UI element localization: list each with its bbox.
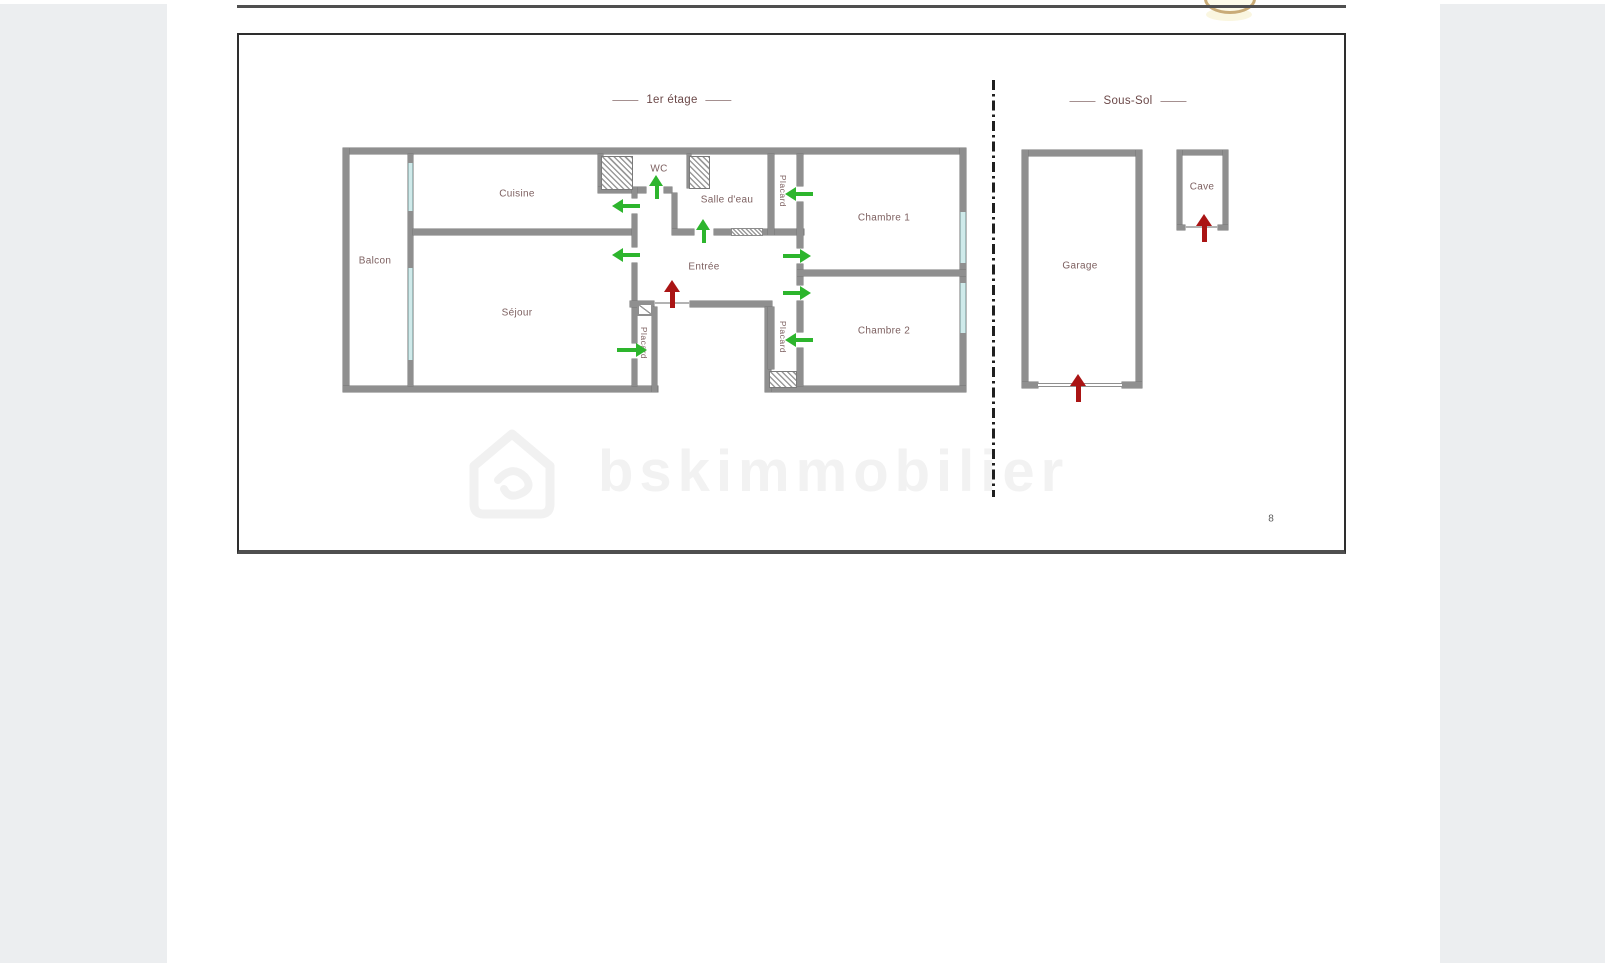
interior-door-arrow-icon bbox=[785, 187, 813, 201]
interior-door-arrow-icon bbox=[783, 286, 811, 300]
interior-door-arrow-icon bbox=[649, 175, 664, 199]
door-threshold-hatch bbox=[731, 228, 763, 236]
page: bskimmobilier 1er étage Sous-Sol bbox=[0, 0, 1605, 963]
wall bbox=[1022, 382, 1038, 388]
shaft-hatch bbox=[769, 371, 797, 388]
room-label-salle-deau: Salle d'eau bbox=[701, 195, 753, 206]
wall bbox=[1136, 150, 1142, 388]
section-title-label: 1er étage bbox=[646, 94, 697, 106]
section-title-1er-etage: 1er étage bbox=[612, 94, 731, 106]
interior-door-arrow-icon bbox=[612, 248, 640, 262]
wall bbox=[1122, 382, 1142, 388]
wall bbox=[1177, 225, 1185, 230]
shaft-hatch bbox=[689, 156, 710, 189]
window bbox=[960, 212, 966, 263]
wall bbox=[672, 229, 694, 235]
wall bbox=[632, 214, 637, 247]
title-dash bbox=[1161, 101, 1187, 102]
wall bbox=[797, 270, 966, 276]
room-label-sejour: Séjour bbox=[502, 308, 533, 319]
window bbox=[408, 268, 413, 360]
section-title-label: Sous-Sol bbox=[1103, 95, 1152, 107]
room-label-cave: Cave bbox=[1190, 182, 1215, 193]
entrance-door-arrow-icon bbox=[1196, 214, 1213, 242]
page-number: 8 bbox=[1268, 514, 1274, 525]
wall bbox=[664, 187, 672, 193]
shaft-hatch bbox=[601, 156, 633, 190]
wall bbox=[768, 154, 774, 235]
wall bbox=[413, 229, 632, 235]
wall bbox=[1223, 150, 1228, 230]
entrance-door-arrow-icon bbox=[1070, 374, 1087, 402]
room-label-chambre-1: Chambre 1 bbox=[858, 213, 910, 224]
wall bbox=[343, 386, 658, 392]
watermark-text: bskimmobilier bbox=[598, 438, 1069, 505]
title-dash bbox=[612, 100, 638, 101]
wall bbox=[1218, 225, 1228, 230]
wall bbox=[343, 148, 966, 154]
wall bbox=[797, 154, 803, 186]
wall bbox=[797, 348, 803, 386]
wall bbox=[1177, 150, 1228, 155]
wall bbox=[1022, 150, 1142, 156]
entrance-door-arrow-icon bbox=[664, 280, 681, 308]
previous-frame-border bbox=[237, 5, 1346, 8]
page-margin-left bbox=[0, 4, 167, 963]
title-dash bbox=[1069, 101, 1095, 102]
title-dash bbox=[706, 100, 732, 101]
room-label-entree: Entrée bbox=[688, 262, 719, 273]
wall bbox=[690, 301, 772, 307]
interior-door-arrow-icon bbox=[785, 333, 813, 347]
interior-door-arrow-icon bbox=[617, 343, 647, 357]
closet-box bbox=[637, 303, 653, 316]
wall bbox=[632, 359, 637, 386]
room-label-balcon: Balcon bbox=[359, 256, 391, 267]
wall bbox=[652, 307, 657, 392]
room-label-cuisine: Cuisine bbox=[499, 189, 534, 200]
interior-door-arrow-icon bbox=[612, 199, 640, 213]
section-title-sous-sol: Sous-Sol bbox=[1069, 95, 1186, 107]
wall bbox=[797, 202, 803, 248]
watermark-house-icon bbox=[462, 424, 562, 520]
wall bbox=[768, 307, 774, 369]
window bbox=[408, 163, 413, 211]
wall bbox=[797, 301, 803, 332]
wall bbox=[1177, 150, 1182, 230]
interior-door-arrow-icon bbox=[783, 249, 811, 263]
interior-door-arrow-icon bbox=[696, 219, 711, 245]
window bbox=[960, 283, 966, 333]
wall bbox=[1022, 150, 1028, 388]
room-label-chambre-2: Chambre 2 bbox=[858, 326, 910, 337]
wall bbox=[343, 148, 349, 392]
floor-divider-line bbox=[992, 80, 995, 497]
room-label-garage: Garage bbox=[1062, 261, 1097, 272]
page-margin-right bbox=[1440, 4, 1605, 963]
room-label-wc: WC bbox=[650, 164, 667, 175]
